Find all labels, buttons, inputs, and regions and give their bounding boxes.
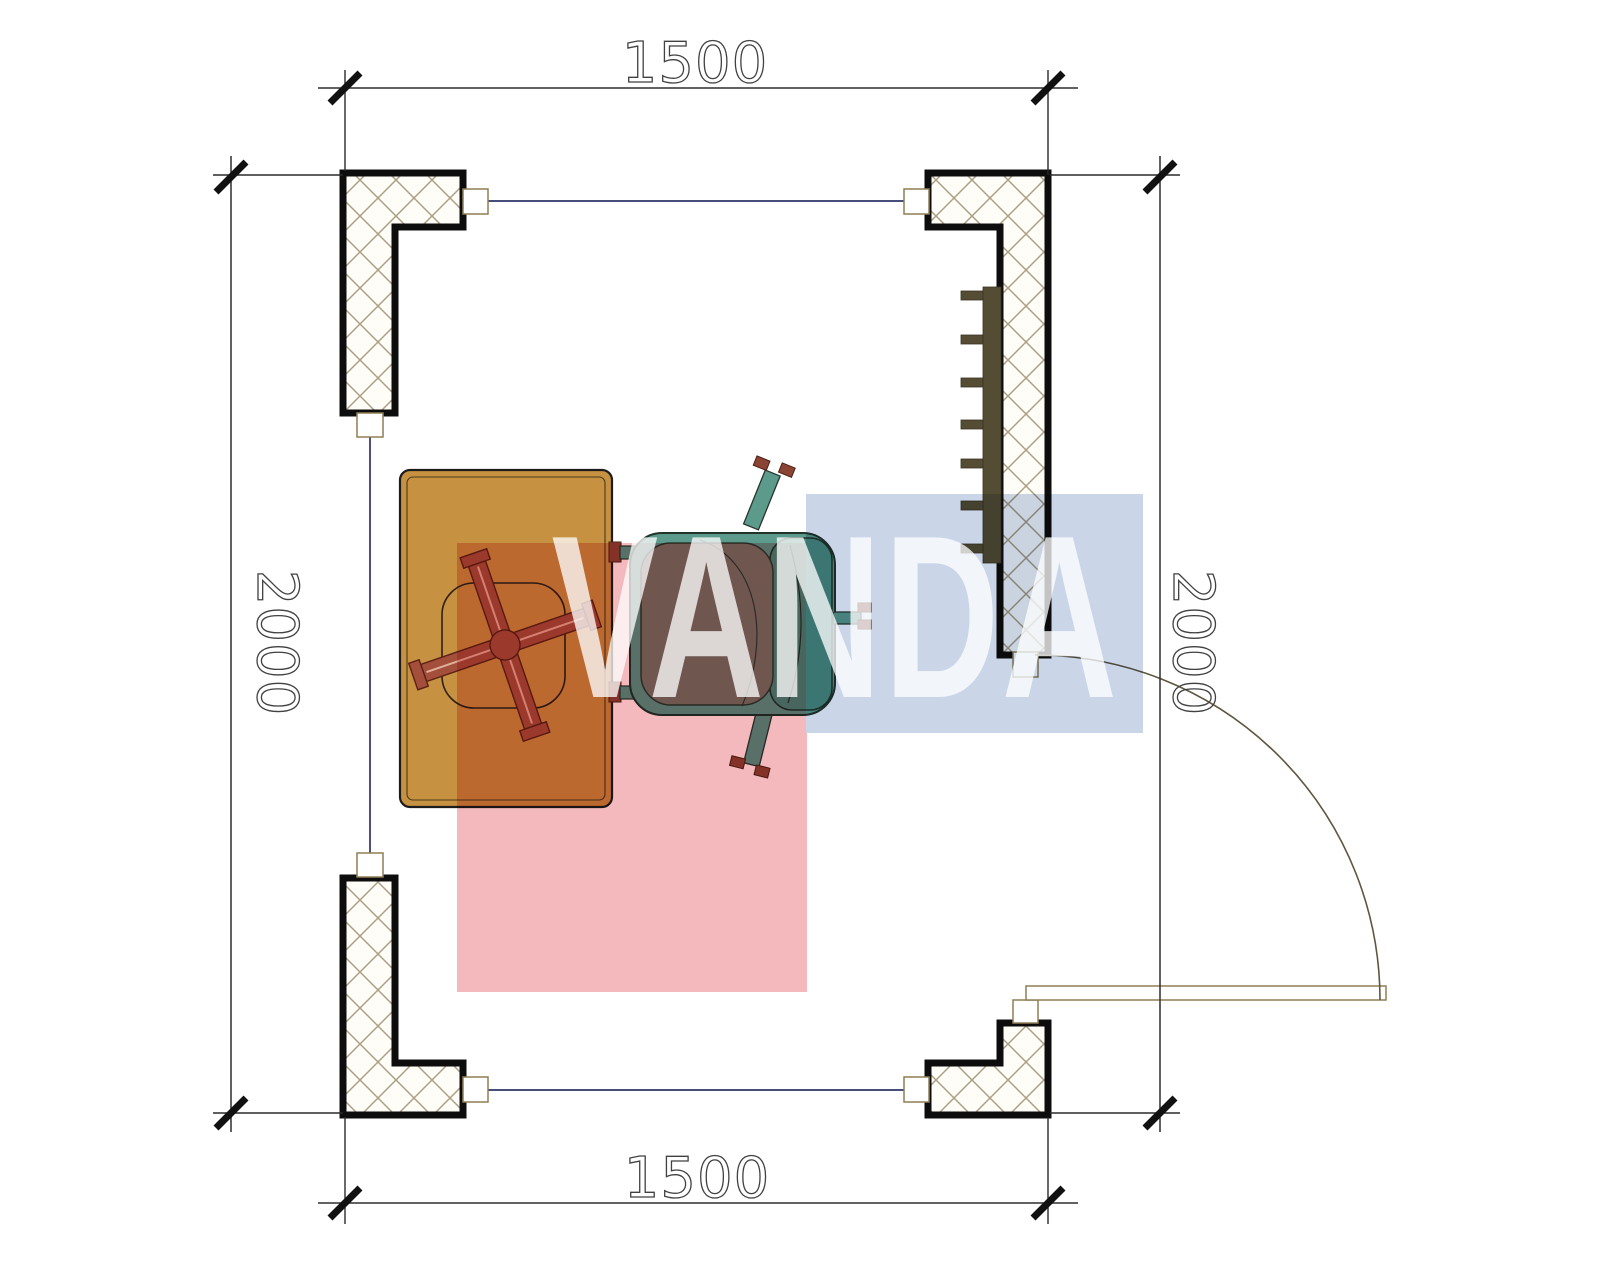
radiator-fin	[961, 544, 983, 553]
radiator-fin	[961, 291, 983, 300]
dimension-left: 2000	[213, 156, 343, 1132]
dimension-bottom: 1500	[318, 1117, 1078, 1224]
door-leaf	[1026, 986, 1386, 1000]
armchair-foot	[753, 456, 770, 471]
desk	[382, 470, 629, 807]
dimension-top: 1500	[318, 31, 1078, 175]
armchair-cushion	[641, 543, 773, 705]
radiator-body	[983, 287, 1001, 563]
window-connector	[904, 189, 929, 214]
dimension-label-right: 2000	[1160, 570, 1225, 717]
armchair-foot	[778, 463, 795, 478]
window-connector	[904, 1077, 929, 1102]
door-jamb-top	[1013, 652, 1038, 677]
radiator-fin	[961, 378, 983, 387]
armchair-foot	[754, 765, 770, 778]
armchair	[609, 453, 871, 778]
radiator-fin	[961, 335, 983, 344]
wall-corner-bottom-left	[343, 878, 463, 1115]
radiator-fin	[961, 420, 983, 429]
window-connector	[357, 413, 383, 437]
wall-corner-top-left	[343, 173, 463, 413]
armchair-foot	[609, 682, 621, 702]
door-jamb-bottom	[1013, 1000, 1038, 1023]
floor-plan-drawing: 1500 1500 2000 2000	[0, 0, 1600, 1280]
window-connector	[357, 853, 383, 877]
armchair-leg-top	[732, 453, 796, 534]
wall-corner-bottom-right	[928, 1023, 1048, 1115]
armchair-foot	[730, 756, 746, 769]
radiator	[961, 287, 1001, 563]
dimension-label-bottom: 1500	[624, 1146, 771, 1211]
dimension-label-top: 1500	[622, 31, 769, 96]
armchair-lever	[833, 612, 861, 624]
armchair-foot	[858, 603, 871, 612]
window-connector	[463, 189, 488, 214]
armchair-foot	[609, 542, 621, 562]
dimension-label-left: 2000	[244, 570, 309, 717]
window-connector	[463, 1077, 488, 1102]
armchair-foot	[858, 620, 871, 629]
radiator-fin	[961, 459, 983, 468]
radiator-fin	[961, 501, 983, 510]
floor-plan-canvas: 1500 1500 2000 2000	[0, 0, 1600, 1280]
